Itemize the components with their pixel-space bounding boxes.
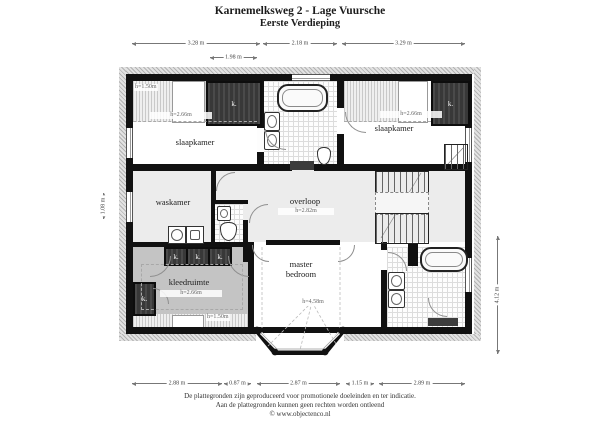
wall-bottom-right: [340, 327, 472, 334]
footer-disclaimer-1: De plattegronden zijn geproduceerd voor …: [0, 392, 600, 400]
arrowhead: [461, 42, 465, 46]
window-left-2: [126, 192, 133, 222]
arrowhead: [333, 42, 337, 46]
stairs-lower-flight: [375, 213, 429, 244]
stairs-landing: [375, 192, 429, 215]
arrowhead: [461, 382, 465, 386]
footer-disclaimer-2: Aan de plattegronden kunnen geen rechten…: [0, 401, 600, 409]
floor-plan-page: { "title": { "line1": "Karnemelksweg 2 -…: [0, 0, 600, 424]
arrowhead: [379, 382, 383, 386]
sink-icon: [388, 272, 405, 290]
dimension-right: 4.12 m: [497, 236, 498, 354]
ceiling-dash-left: [133, 121, 257, 122]
wall-master-bath-b: [381, 270, 387, 332]
door-gap: [257, 128, 264, 152]
ceiling-height-label: h=2.82m: [278, 208, 334, 215]
arrowhead: [257, 382, 261, 386]
dryer-icon: [186, 226, 204, 244]
ceiling-height-label: h=2.66m: [380, 111, 442, 118]
closet-label: k.: [173, 253, 178, 261]
arrowhead: [496, 236, 500, 240]
washer-icon: [168, 226, 186, 244]
dimension-top-1: 3.28 m: [132, 43, 260, 44]
low-height-label: h=1.50m: [134, 84, 158, 91]
closet-label: k.: [231, 100, 236, 108]
arrowhead: [218, 382, 222, 386]
low-height-label: h=1.50m: [206, 314, 230, 321]
arrowhead: [132, 42, 136, 46]
door-gap: [337, 108, 344, 134]
stairs-small: [444, 144, 468, 170]
room-label-master-bedroom: master bedroom: [278, 260, 324, 280]
arrowhead: [253, 56, 257, 60]
shower-threshold: [290, 161, 314, 170]
room-label-slaapkamer-left: slaapkamer: [133, 138, 257, 148]
room-label-kleedruimte: kleedruimte: [133, 278, 245, 288]
ceiling-height-label: h=2.66m: [150, 112, 212, 119]
room-label-slaapkamer-right: slaapkamer: [344, 124, 444, 134]
closet-k: k.: [206, 81, 262, 126]
shower-floor: [428, 318, 458, 326]
arrowhead: [370, 382, 374, 386]
ceiling-height-label: h=4.58m: [288, 299, 338, 306]
closet-label: k.: [195, 253, 200, 261]
dimension-bottom-5: 2.89 m: [379, 383, 465, 384]
wall-toilet-top: [211, 200, 246, 204]
dimension-top-2: 2.18 m: [263, 43, 337, 44]
wall-master-top: [266, 240, 340, 245]
arrowhead: [256, 42, 260, 46]
closet-label: k.: [217, 253, 222, 261]
dimension-bottom-3: 2.87 m: [257, 383, 340, 384]
closet-k: k.: [431, 81, 470, 126]
sink-icon: [388, 290, 405, 308]
wall-bottom-left: [126, 327, 258, 334]
arrowhead: [210, 56, 214, 60]
sink-icon: [217, 206, 231, 221]
window-left-1: [126, 128, 133, 158]
bathtub-icon: [277, 84, 328, 112]
arrowhead: [342, 42, 346, 46]
wall-bath-stub: [408, 244, 418, 266]
bathtub-icon: [420, 247, 468, 272]
door-gap: [243, 204, 248, 220]
dimension-bottom-1: 2.88 m: [132, 383, 222, 384]
footer-copyright: © www.objectenco.nl: [0, 410, 600, 418]
room-label-waskamer: waskamer: [133, 198, 213, 208]
closet-label: k.: [448, 100, 453, 108]
ceiling-dash-right: [344, 121, 431, 122]
dimension-bottom-4: 1.15 m: [346, 383, 374, 384]
room-label-overloop: overloop: [250, 197, 360, 207]
arrowhead: [336, 382, 340, 386]
dimension-left: 1.08 m: [103, 193, 104, 219]
stairs-upper-flight: [375, 171, 429, 194]
window-top-1: [292, 74, 330, 81]
bay-post: [272, 349, 279, 356]
arrowhead: [496, 350, 500, 354]
dimension-bottom-2: 0.87 m: [224, 383, 251, 384]
arrowhead: [263, 42, 267, 46]
arrowhead: [132, 382, 136, 386]
dimension-top-3: 3.29 m: [342, 43, 465, 44]
ceiling-height-label: h=2.66m: [160, 290, 222, 297]
bay-post: [322, 349, 329, 356]
dimension-top-sub: 1.98 m: [210, 57, 257, 58]
